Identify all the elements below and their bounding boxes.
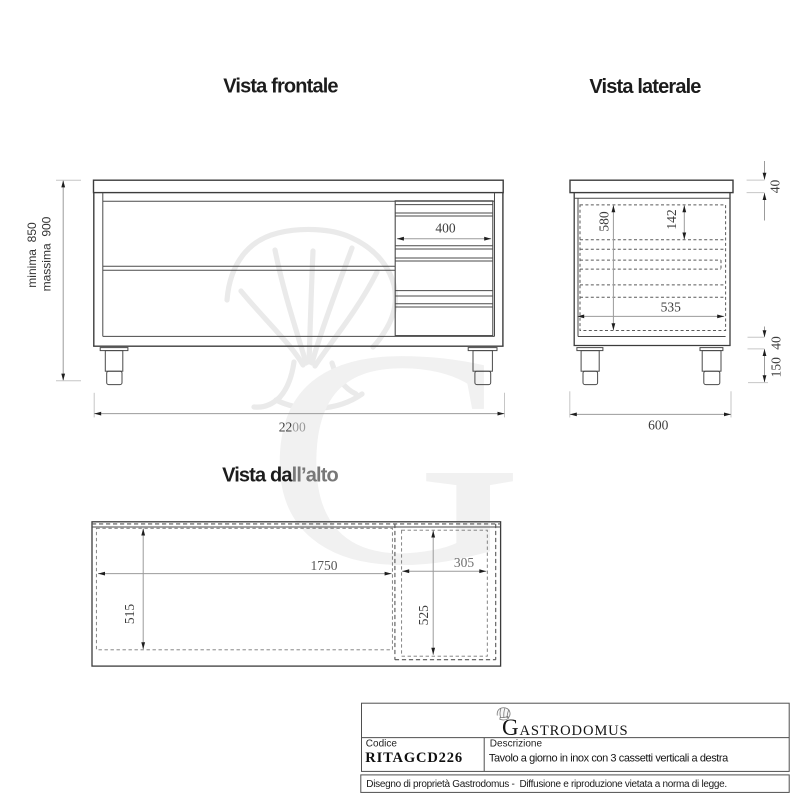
svg-text:400: 400 <box>435 220 456 235</box>
svg-text:Vista dall’alto: Vista dall’alto <box>222 465 338 487</box>
svg-text:1750: 1750 <box>311 558 338 573</box>
svg-text:Vista laterale: Vista laterale <box>589 76 701 98</box>
svg-text:535: 535 <box>661 299 682 314</box>
svg-text:142: 142 <box>664 209 679 229</box>
svg-text:580: 580 <box>597 211 612 232</box>
svg-text:525: 525 <box>416 605 431 626</box>
svg-text:massima 900: massima 900 <box>40 216 54 291</box>
svg-text:Tavolo a giorno in inox con 3: Tavolo a giorno in inox con 3 cassetti v… <box>489 753 729 765</box>
svg-text:Codice: Codice <box>366 739 398 750</box>
svg-text:515: 515 <box>122 604 137 625</box>
svg-text:305: 305 <box>454 555 475 570</box>
svg-text:Descrizione: Descrizione <box>490 738 543 749</box>
svg-text:2200: 2200 <box>279 420 306 435</box>
svg-text:600: 600 <box>648 417 669 432</box>
svg-text:RITAGCD226: RITAGCD226 <box>365 750 463 766</box>
svg-text:minima 850: minima 850 <box>25 222 39 288</box>
svg-text:Disegno di proprietà Gastrodom: Disegno di proprietà Gastrodomus - Diffu… <box>366 779 727 790</box>
svg-text:40: 40 <box>769 336 784 350</box>
svg-text:150: 150 <box>769 357 784 378</box>
svg-text:40: 40 <box>768 180 783 194</box>
svg-text:Vista frontale: Vista frontale <box>223 76 338 98</box>
